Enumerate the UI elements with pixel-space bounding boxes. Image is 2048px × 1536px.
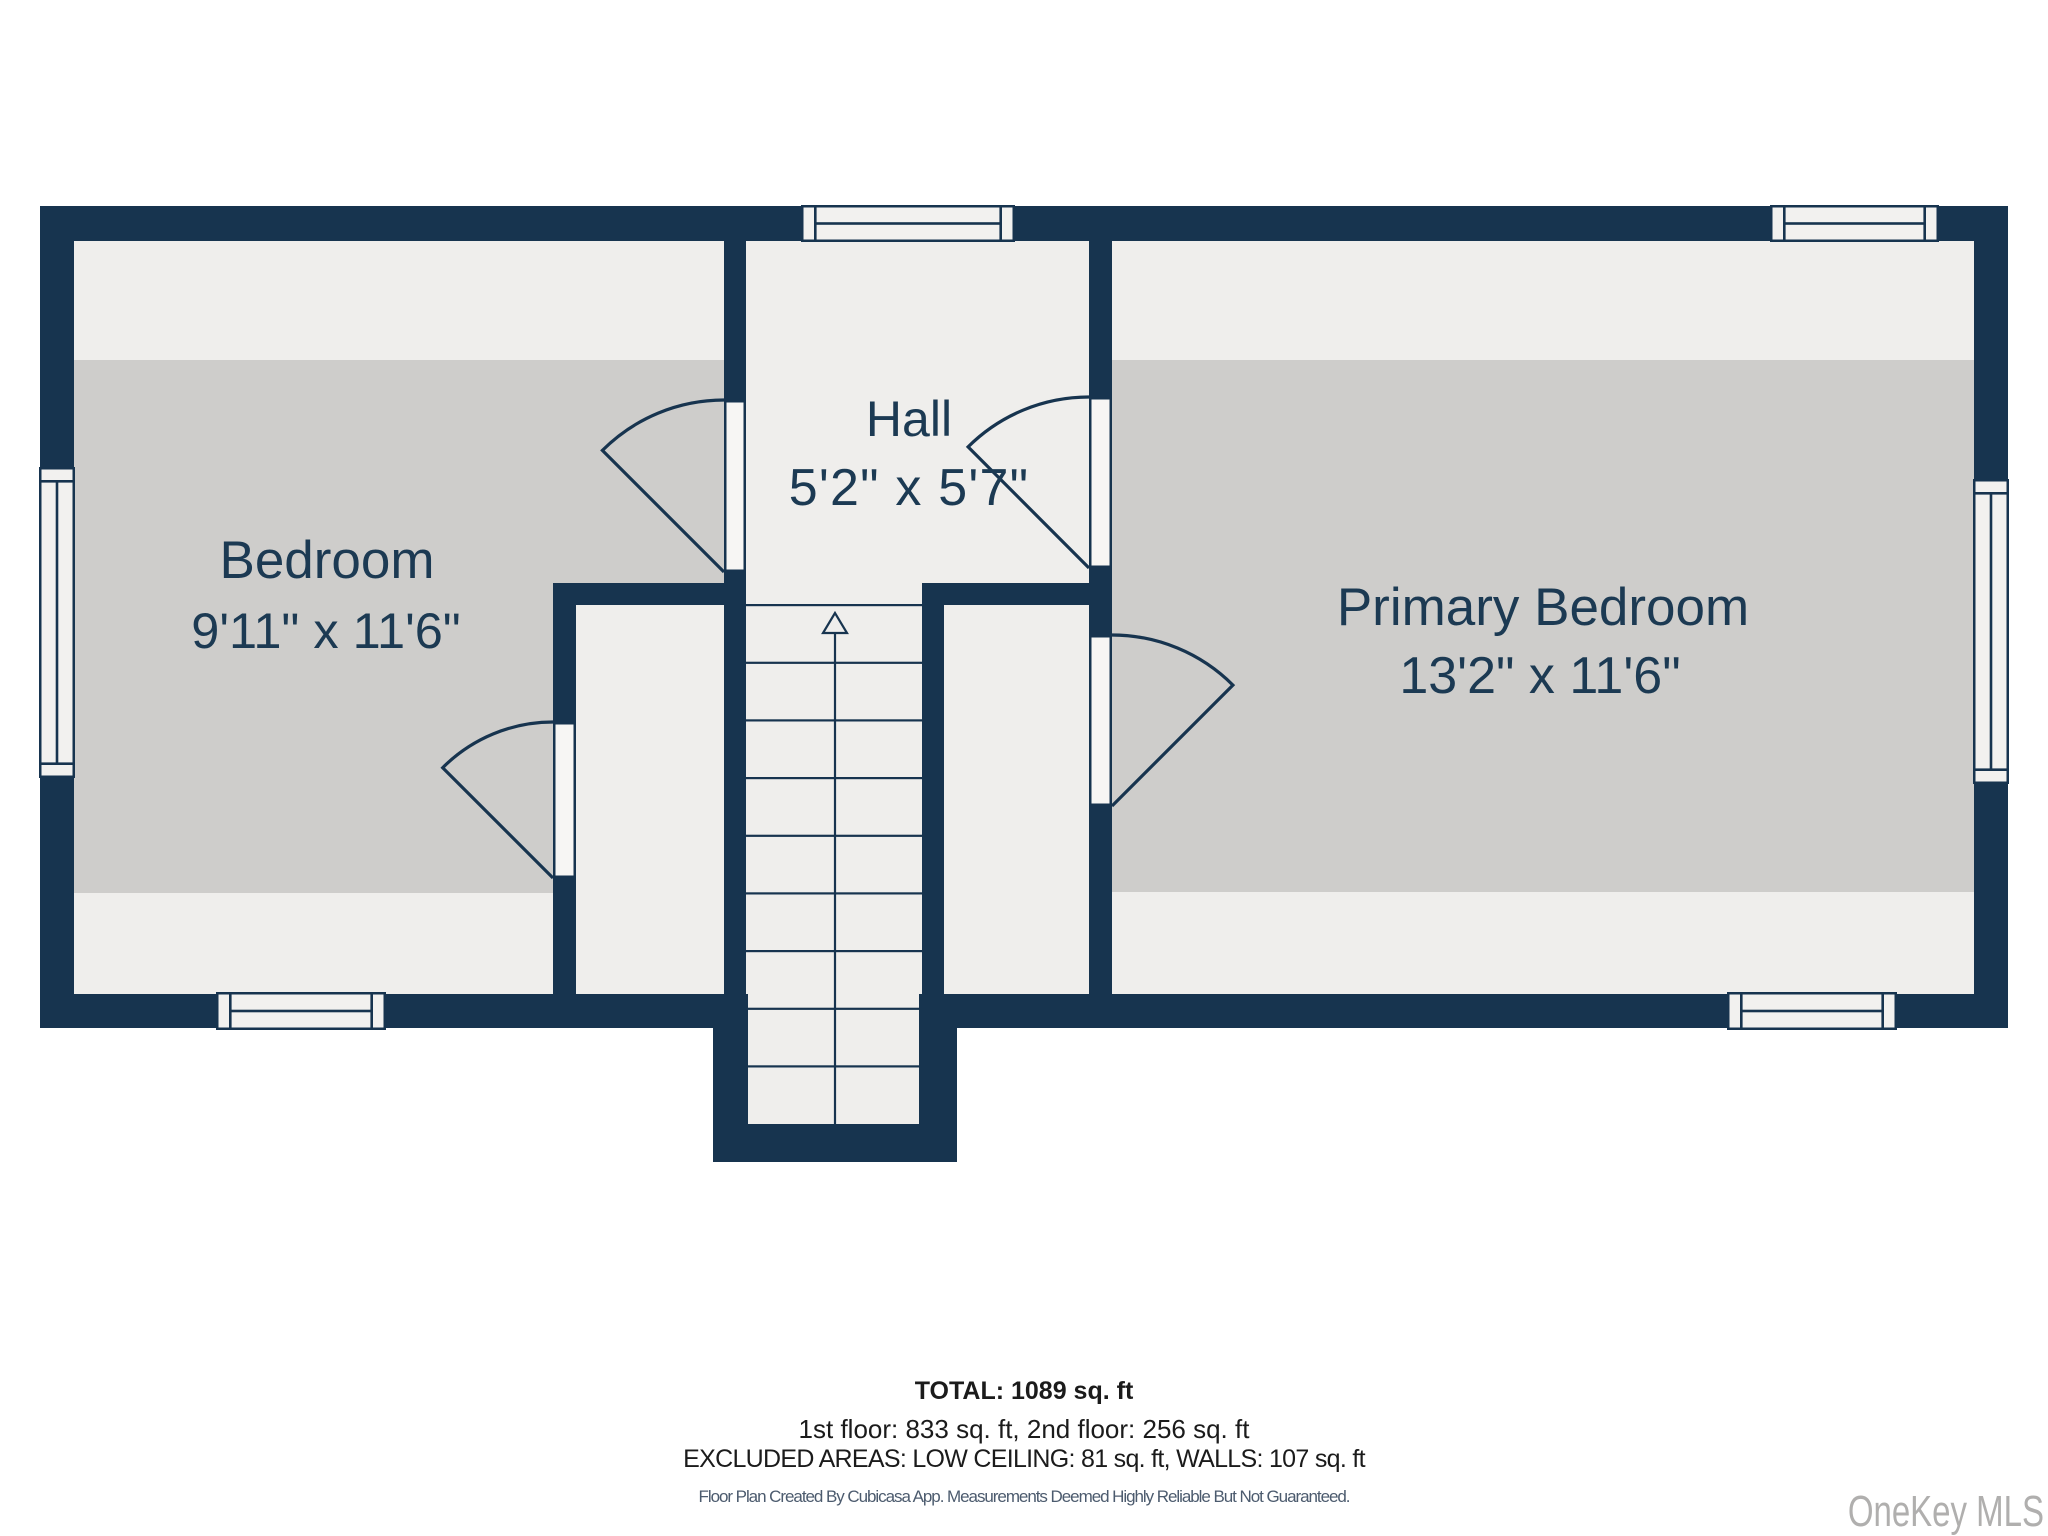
svg-text:Hall: Hall — [866, 391, 952, 447]
svg-text:TOTAL: 1089 sq. ft: TOTAL: 1089 sq. ft — [915, 1377, 1134, 1405]
svg-text:EXCLUDED AREAS: LOW CEILING: 8: EXCLUDED AREAS: LOW CEILING: 81 sq. ft, … — [683, 1445, 1365, 1473]
svg-text:13'2" x 11'6": 13'2" x 11'6" — [1399, 647, 1680, 705]
svg-text:5'2" x 5'7": 5'2" x 5'7" — [789, 459, 1030, 517]
svg-text:Bedroom: Bedroom — [219, 531, 434, 590]
svg-text:1st floor: 833 sq. ft, 2nd flo: 1st floor: 833 sq. ft, 2nd floor: 256 sq… — [799, 1414, 1251, 1444]
svg-text:Floor Plan Created By Cubicasa: Floor Plan Created By Cubicasa App. Meas… — [699, 1487, 1350, 1506]
svg-text:Primary Bedroom: Primary Bedroom — [1337, 578, 1749, 637]
svg-text:9'11" x 11'6": 9'11" x 11'6" — [191, 602, 460, 659]
svg-text:OneKey MLS: OneKey MLS — [1848, 1488, 2044, 1536]
